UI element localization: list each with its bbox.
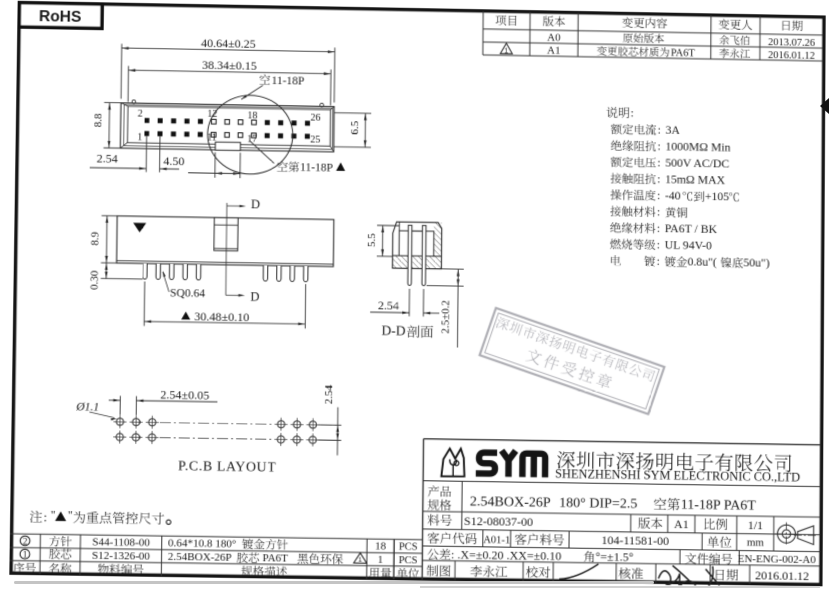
svg-text:S44-1108-00: S44-1108-00: [92, 536, 150, 549]
svg-text:2.54BOX-26P: 2.54BOX-26P: [470, 494, 551, 510]
svg-text:1: 1: [23, 549, 28, 559]
svg-text:S12-08037-00: S12-08037-00: [464, 514, 533, 529]
svg-text:PA6T: PA6T: [671, 48, 696, 59]
svg-text:11-18P: 11-18P: [300, 162, 333, 175]
svg-text:SQ0.64: SQ0.64: [170, 287, 205, 300]
svg-text:8.9: 8.9: [89, 231, 101, 245]
svg-text:8.8: 8.8: [92, 113, 104, 127]
svg-text:6.5: 6.5: [349, 120, 361, 134]
svg-text:104-11581-00: 104-11581-00: [601, 533, 669, 548]
svg-text:2.54±0.05: 2.54±0.05: [160, 387, 209, 402]
svg-text:1: 1: [377, 554, 383, 566]
svg-text:S12-1326-00: S12-1326-00: [92, 550, 151, 563]
svg-text::: :: [657, 123, 660, 137]
svg-text:UL 94V-0: UL 94V-0: [665, 238, 712, 253]
svg-text:4.50: 4.50: [163, 154, 184, 168]
svg-text:40.64±0.25: 40.64±0.25: [201, 36, 256, 51]
svg-text::: :: [657, 238, 660, 252]
svg-text:PA6T / BK: PA6T / BK: [665, 221, 718, 236]
svg-text:2.54: 2.54: [378, 298, 399, 312]
svg-text:1000MΩ Min: 1000MΩ Min: [665, 139, 730, 154]
svg-text:2.54: 2.54: [323, 384, 335, 404]
svg-text:-40: -40: [665, 189, 681, 203]
svg-text::: :: [657, 221, 660, 235]
svg-text:2: 2: [138, 108, 143, 119]
svg-text:18: 18: [247, 110, 257, 121]
svg-text::: :: [43, 509, 47, 524]
svg-text:3A: 3A: [665, 123, 680, 137]
svg-text:1/1: 1/1: [748, 518, 763, 532]
svg-text:PCS: PCS: [399, 555, 418, 566]
svg-text:2.5±0.2: 2.5±0.2: [440, 300, 452, 334]
svg-text:SHENZHENSHI SYM ELECTRONIC CO.: SHENZHENSHI SYM ELECTRONIC CO.,LTD: [555, 466, 800, 484]
svg-text:°=±1.5°: °=±1.5°: [595, 549, 633, 564]
svg-text:0.64*10.8 180°: 0.64*10.8 180°: [168, 537, 236, 550]
svg-text:180° DIP=2.5: 180° DIP=2.5: [559, 496, 637, 512]
svg-text:12: 12: [207, 109, 217, 120]
svg-text::: :: [657, 205, 660, 219]
svg-text:D: D: [251, 197, 260, 211]
svg-text:2016.01.12: 2016.01.12: [755, 568, 809, 583]
svg-text::: :: [656, 254, 659, 268]
svg-text::: :: [657, 156, 660, 170]
svg-text:RoHS: RoHS: [39, 8, 82, 26]
svg-text:38.34±0.15: 38.34±0.15: [202, 58, 257, 73]
svg-text:P.C.B LAYOUT: P.C.B LAYOUT: [178, 458, 276, 475]
svg-text::: :: [657, 172, 660, 186]
svg-text:50u"): 50u"): [743, 256, 770, 270]
svg-text:5.5: 5.5: [366, 233, 378, 247]
svg-text:A1: A1: [674, 517, 689, 531]
svg-text:": ": [68, 508, 73, 522]
svg-text:D-D: D-D: [381, 323, 405, 338]
svg-text:2013.07.26: 2013.07.26: [768, 37, 815, 49]
svg-text:1: 1: [504, 48, 508, 55]
svg-text:500V AC/DC: 500V AC/DC: [665, 156, 729, 171]
svg-text:0.30: 0.30: [89, 270, 101, 290]
svg-text:18: 18: [375, 540, 387, 552]
svg-text:EN-ENG-002-A0: EN-ENG-002-A0: [738, 553, 817, 566]
svg-text:1: 1: [137, 132, 142, 143]
svg-text:26: 26: [310, 112, 320, 123]
svg-text:11-18P: 11-18P: [271, 75, 304, 88]
svg-text::: :: [657, 139, 660, 153]
svg-text:Ø1.1: Ø1.1: [75, 401, 99, 413]
svg-text:2.54BOX-26P: 2.54BOX-26P: [168, 551, 232, 564]
svg-text:2.54: 2.54: [97, 151, 118, 165]
svg-text:11: 11: [207, 132, 217, 143]
svg-text:1: 1: [358, 557, 362, 564]
svg-text:25: 25: [310, 134, 320, 145]
svg-text:A0: A0: [547, 32, 561, 44]
svg-text:+105: +105: [705, 189, 729, 203]
svg-text::: :: [630, 106, 633, 120]
svg-text:mm: mm: [747, 537, 765, 549]
svg-text:2016.01.12: 2016.01.12: [768, 50, 815, 62]
svg-text:A1: A1: [547, 45, 561, 57]
svg-text:PCS: PCS: [399, 542, 418, 553]
svg-text:0.8u"(: 0.8u"(: [687, 255, 716, 269]
svg-text:11-18P PA6T: 11-18P PA6T: [681, 498, 757, 514]
svg-text:D: D: [250, 290, 259, 304]
svg-text:PA6T: PA6T: [262, 552, 288, 564]
svg-text:: .X=±0.20 .XX=±0.10: : .X=±0.20 .XX=±0.10: [451, 547, 562, 563]
svg-text:2: 2: [23, 536, 28, 546]
svg-text:15mΩ MAX: 15mΩ MAX: [665, 172, 726, 187]
svg-text:A01-1: A01-1: [483, 535, 510, 546]
svg-text:": ": [51, 507, 56, 521]
svg-text:30.48±0.10: 30.48±0.10: [194, 309, 249, 324]
svg-text::: :: [657, 188, 660, 202]
